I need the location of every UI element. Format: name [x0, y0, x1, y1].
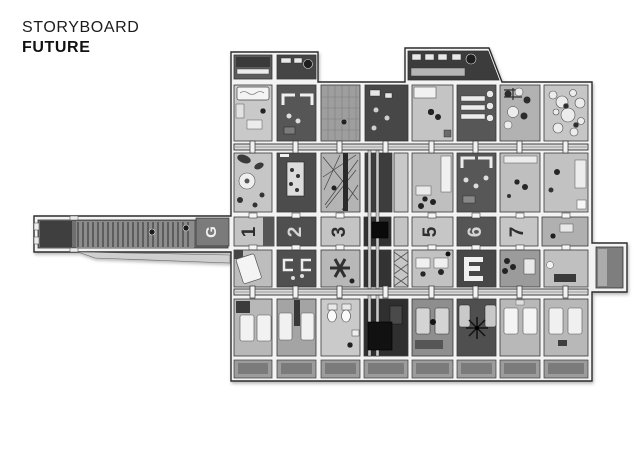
- gangway-platform: [40, 221, 72, 247]
- door-icon: [577, 200, 586, 209]
- machine-icon: [368, 322, 392, 350]
- bed-icon: [257, 315, 271, 341]
- person-icon: [504, 258, 510, 264]
- corridor-label-3: 3: [329, 227, 350, 238]
- equipment-icon: [412, 54, 421, 60]
- table-icon: [304, 60, 313, 69]
- bed-icon: [435, 308, 449, 334]
- person-icon: [438, 269, 444, 275]
- person-icon: [514, 179, 520, 185]
- person-icon: [422, 196, 428, 202]
- bed-icon: [301, 313, 314, 340]
- equipment-icon: [452, 54, 461, 60]
- stool-icon: [296, 119, 301, 124]
- person-icon: [149, 229, 155, 235]
- floorplan-rendering: 1 2 3 5 6 7: [0, 0, 640, 452]
- table-icon: [560, 224, 573, 232]
- stool-icon: [287, 114, 292, 119]
- bed-icon: [504, 308, 518, 334]
- lamp-icon: [446, 252, 451, 257]
- bed-icon: [459, 305, 470, 327]
- roof-plant-room: [408, 51, 499, 80]
- gangway: G: [34, 216, 230, 263]
- corridor-label-g: G: [203, 226, 220, 238]
- bed-icon: [279, 313, 292, 340]
- person-icon: [550, 233, 556, 239]
- person-icon: [554, 169, 560, 175]
- corridor-label-7: 7: [507, 227, 528, 238]
- person-icon: [341, 119, 347, 125]
- person-icon: [183, 225, 189, 231]
- person-icon: [418, 203, 424, 209]
- desk-icon: [434, 258, 448, 268]
- slide: STORYBOARD FUTURE: [0, 0, 640, 452]
- table-icon: [466, 54, 476, 64]
- person-icon: [420, 271, 426, 277]
- toilet-icon: [328, 310, 337, 322]
- counter-icon: [294, 58, 302, 63]
- person-icon: [522, 184, 528, 190]
- nightstand-icon: [516, 300, 524, 305]
- desk-icon: [416, 186, 431, 195]
- equipment-icon: [425, 54, 434, 60]
- person-icon: [435, 114, 441, 120]
- bench-icon: [461, 105, 485, 110]
- dresser-icon: [236, 104, 244, 118]
- post-icon: [343, 153, 348, 211]
- person-icon: [430, 319, 436, 325]
- person-icon: [510, 264, 516, 270]
- desk-icon: [575, 160, 586, 188]
- counter-icon: [504, 156, 537, 163]
- bench-icon: [237, 69, 269, 74]
- toilet-icon: [342, 310, 351, 322]
- person-icon: [350, 279, 355, 284]
- pier-balcony: [596, 247, 623, 288]
- gangway-rail: [78, 252, 230, 263]
- corridor-label-6: 6: [465, 227, 486, 238]
- panel-icon: [441, 156, 451, 192]
- bed-icon: [549, 308, 563, 334]
- sink-icon: [352, 330, 359, 336]
- bench-icon: [461, 96, 485, 101]
- desk-icon: [416, 258, 430, 268]
- person-icon: [428, 109, 435, 116]
- corridor-label-5: 5: [420, 226, 441, 237]
- bed-icon: [237, 87, 269, 100]
- bed-icon: [523, 308, 537, 334]
- door-icon: [280, 154, 289, 157]
- table-icon: [524, 259, 535, 274]
- table-icon: [554, 274, 576, 282]
- corridor-label-2: 2: [285, 227, 306, 238]
- person-icon: [347, 342, 353, 348]
- counter-icon: [281, 58, 291, 63]
- person-icon: [430, 199, 436, 205]
- bed-icon: [485, 305, 496, 327]
- bed-icon: [240, 315, 254, 341]
- chair-icon: [547, 262, 554, 269]
- person-icon: [260, 108, 266, 114]
- bed-icon: [414, 87, 436, 98]
- table-icon: [247, 120, 262, 129]
- elevator-cab-icon: [372, 222, 388, 238]
- person-icon: [502, 268, 508, 274]
- corridor-label-1: 1: [239, 226, 260, 237]
- bed-icon: [568, 308, 582, 334]
- bed-icon: [416, 308, 430, 334]
- bench-icon: [461, 114, 485, 119]
- equipment-icon: [438, 54, 447, 60]
